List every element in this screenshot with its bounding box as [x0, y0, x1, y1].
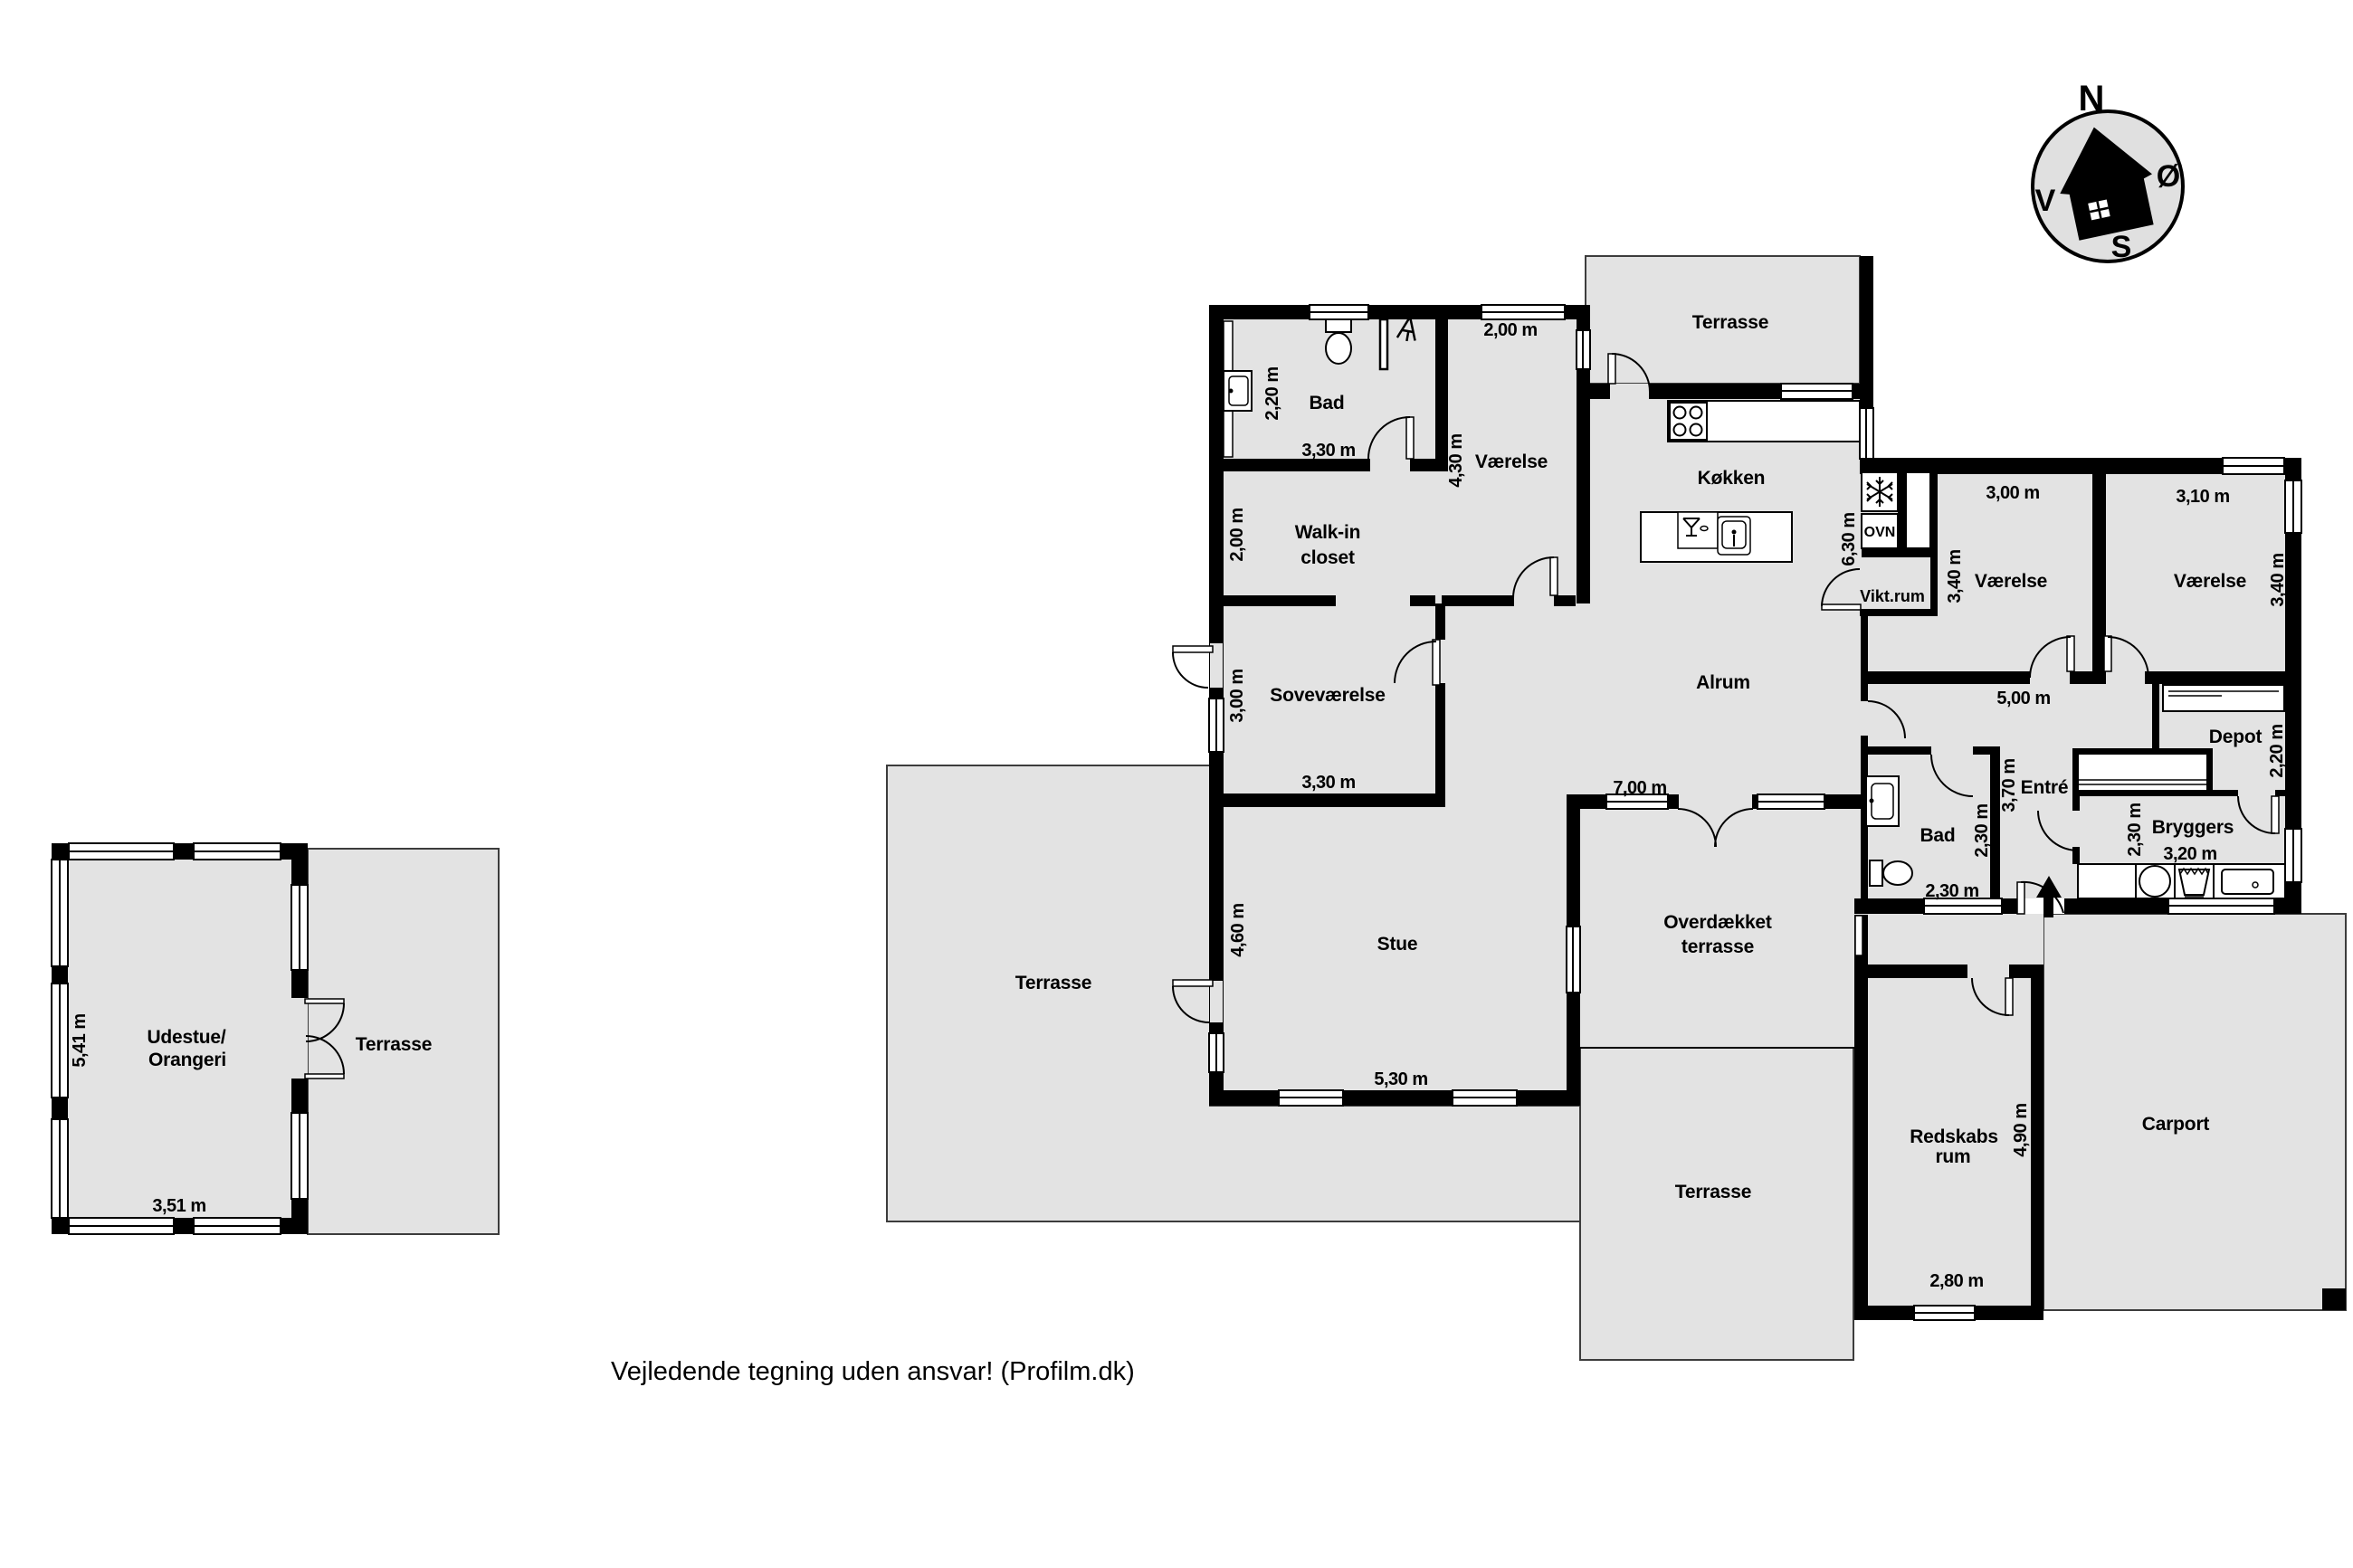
svg-text:Terrasse: Terrasse [1675, 1182, 1751, 1202]
svg-text:Alrum: Alrum [1696, 672, 1750, 693]
svg-text:Overdækket: Overdækket [1663, 912, 1772, 933]
svg-text:2,20 m: 2,20 m [2267, 724, 2287, 777]
svg-text:2,30 m: 2,30 m [2125, 803, 2145, 856]
svg-text:2,00 m: 2,00 m [1227, 508, 1247, 561]
svg-text:Køkken: Køkken [1698, 468, 1766, 489]
svg-text:Bad: Bad [1309, 393, 1344, 413]
svg-text:Bad: Bad [1920, 825, 1955, 846]
svg-text:3,40 m: 3,40 m [1945, 549, 1965, 603]
svg-text:6,30 m: 6,30 m [1839, 512, 1859, 565]
svg-text:N: N [2079, 79, 2105, 119]
svg-text:terrasse: terrasse [1681, 936, 1754, 957]
svg-text:Walk-in: Walk-in [1295, 522, 1361, 543]
svg-text:Depot: Depot [2209, 727, 2262, 747]
svg-text:3,40 m: 3,40 m [2268, 553, 2288, 606]
svg-text:3,70 m: 3,70 m [1999, 758, 2019, 812]
svg-text:Terrasse: Terrasse [1692, 312, 1768, 333]
svg-text:Entré: Entré [2021, 777, 2069, 798]
svg-text:Ø: Ø [2157, 159, 2180, 194]
svg-text:4,30 m: 4,30 m [1446, 433, 1466, 487]
svg-text:2,30 m: 2,30 m [1972, 803, 1992, 857]
svg-text:Værelse: Værelse [1475, 451, 1548, 472]
svg-text:Terrasse: Terrasse [1015, 973, 1091, 993]
svg-text:3,00 m: 3,00 m [1227, 669, 1247, 722]
svg-text:3,20 m: 3,20 m [2163, 844, 2216, 864]
svg-text:Terrasse: Terrasse [356, 1034, 432, 1055]
svg-text:Soveværelse: Soveværelse [1270, 685, 1385, 706]
svg-text:Stue: Stue [1377, 934, 1418, 955]
svg-text:2,00 m: 2,00 m [1483, 320, 1537, 340]
svg-text:S: S [2111, 230, 2132, 264]
svg-text:Vejledende tegning uden ansvar: Vejledende tegning uden ansvar! (Profilm… [611, 1357, 1135, 1386]
svg-text:2,30 m: 2,30 m [1925, 881, 1978, 901]
svg-text:Carport: Carport [2142, 1114, 2210, 1135]
svg-text:closet: closet [1300, 547, 1355, 568]
svg-text:2,80 m: 2,80 m [1929, 1271, 1983, 1291]
svg-text:V: V [2035, 184, 2056, 218]
svg-text:3,10 m: 3,10 m [2176, 487, 2229, 507]
svg-text:5,30 m: 5,30 m [1374, 1069, 1427, 1089]
svg-text:Værelse: Værelse [1975, 571, 2047, 592]
svg-text:3,51 m: 3,51 m [152, 1196, 205, 1216]
svg-text:5,41 m: 5,41 m [70, 1013, 90, 1067]
svg-text:5,00 m: 5,00 m [1996, 689, 2050, 708]
svg-text:7,00 m: 7,00 m [1613, 778, 1666, 798]
svg-text:Vikt.rum: Vikt.rum [1860, 587, 1925, 605]
svg-text:3,30 m: 3,30 m [1301, 773, 1355, 793]
svg-text:4,90 m: 4,90 m [2011, 1103, 2031, 1156]
svg-text:3,00 m: 3,00 m [1986, 483, 2039, 503]
svg-text:Redskabs: Redskabs [1910, 1126, 1998, 1147]
svg-text:Bryggers: Bryggers [2152, 817, 2234, 838]
svg-text:rum: rum [1935, 1146, 1970, 1167]
svg-text:4,60 m: 4,60 m [1228, 903, 1248, 956]
svg-text:2,20 m: 2,20 m [1262, 366, 1282, 420]
svg-text:OVN: OVN [1864, 525, 1896, 540]
svg-text:Værelse: Værelse [2174, 571, 2246, 592]
svg-text:Udestue/: Udestue/ [147, 1027, 225, 1048]
svg-text:3,30 m: 3,30 m [1301, 441, 1355, 461]
svg-text:Orangeri: Orangeri [148, 1050, 226, 1070]
